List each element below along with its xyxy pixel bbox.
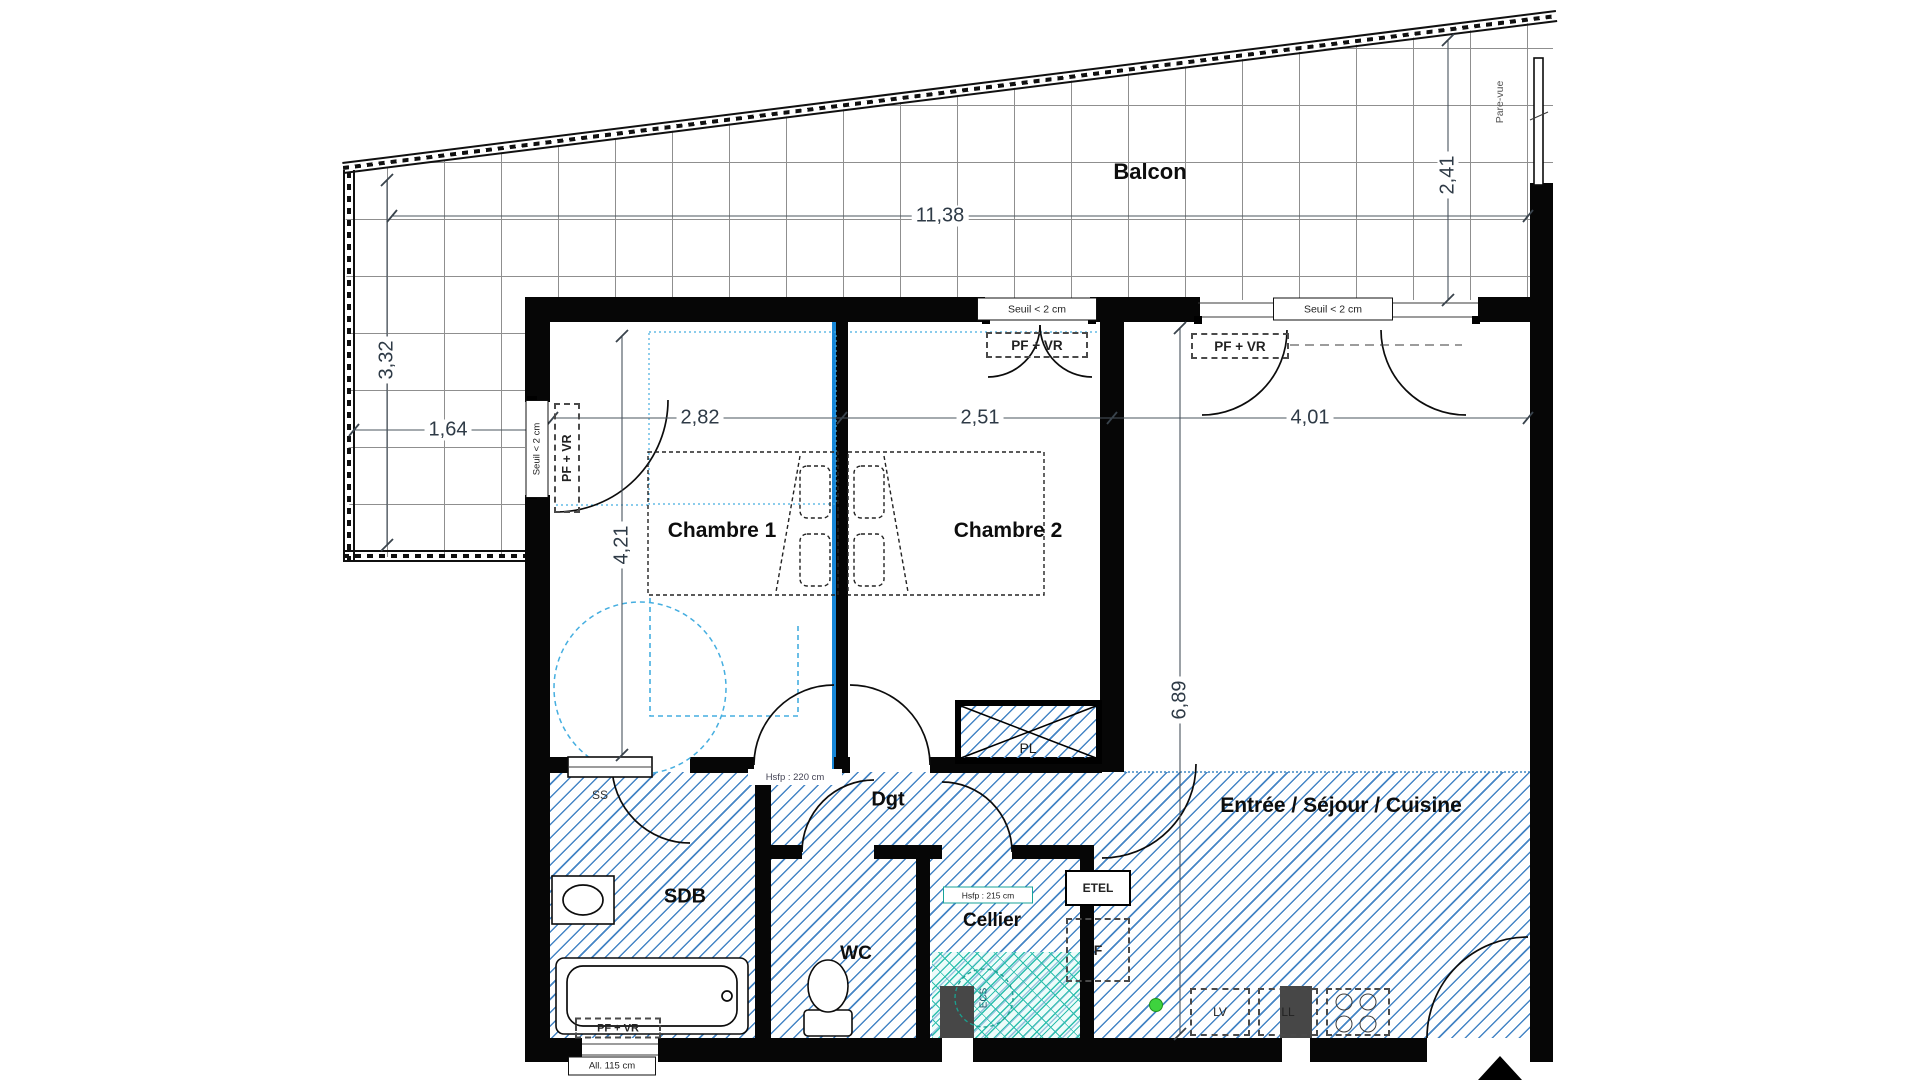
threshold-box-window1: Seuil < 2 cm [977, 298, 1097, 321]
privacy-screen-symbol [1530, 58, 1548, 185]
ceiling-height-220-label: Hsfp : 220 cm [748, 769, 842, 785]
window-type-box-left: PF + VR [554, 403, 580, 513]
room2-label: Chambre 2 [954, 519, 1063, 543]
dim-balcony-width-left: 1,64 [425, 420, 472, 441]
floor-plan: Balcon 11,38 2,41 3,32 1,64 Pare-vue 2,8… [0, 0, 1920, 1080]
fridge-box: F [1066, 918, 1130, 982]
door-arcs [556, 325, 1528, 1038]
dim-room1-depth: 4,21 [612, 522, 633, 569]
dim-living-width: 4,01 [1287, 408, 1334, 429]
washbasin [552, 876, 614, 924]
dimension-lines [349, 34, 1533, 1040]
towel-radiator [568, 757, 652, 777]
entry-arrow [1478, 1056, 1522, 1080]
storage-label: Cellier [963, 910, 1021, 932]
dim-balcony-length: 11,38 [912, 206, 969, 227]
dim-room2-width: 2,51 [957, 408, 1004, 429]
closet-label: PL [1019, 740, 1036, 756]
ceiling-height-215-label: Hsfp : 215 cm [943, 887, 1033, 904]
dim-room1-width: 2,82 [677, 408, 724, 429]
dim-balcony-depth-left: 3,32 [377, 337, 398, 384]
balcony-label: Balcon [1113, 159, 1186, 185]
green-marker-dot [1149, 998, 1163, 1012]
electrical-box-label: ETEL [1065, 870, 1131, 906]
blue-overlays [554, 332, 1530, 774]
hob-box [1326, 988, 1390, 1036]
dishwasher-box: LV [1190, 988, 1250, 1036]
threshold-box-window2: Seuil < 2 cm [1273, 298, 1393, 321]
sill-height-box: All. 115 cm [568, 1057, 656, 1076]
dim-living-depth: 6,89 [1170, 677, 1191, 724]
dim-balcony-depth-right: 2,41 [1438, 152, 1459, 199]
bathroom-label: SDB [664, 886, 706, 909]
water-heater-label: ECS [979, 988, 990, 1009]
wc-label: WC [840, 943, 872, 965]
living-label: Entrée / Séjour / Cuisine [1220, 794, 1462, 818]
window-type-box-bottom: PF + VR [575, 1018, 661, 1039]
towel-rail-label: SS [592, 788, 608, 802]
threshold-box-left: Seuil < 2 cm [526, 400, 549, 498]
window-type-box-1: PF + VR [986, 332, 1088, 358]
window-type-box-2: PF + VR [1191, 333, 1289, 359]
window-glazing [527, 303, 1480, 1055]
washer-box: LL [1258, 988, 1318, 1036]
privacy-screen-label: Pare-vue [1494, 81, 1506, 124]
room1-label: Chambre 1 [668, 519, 777, 543]
toilet [804, 960, 852, 1036]
hallway-label: Dgt [871, 789, 904, 812]
